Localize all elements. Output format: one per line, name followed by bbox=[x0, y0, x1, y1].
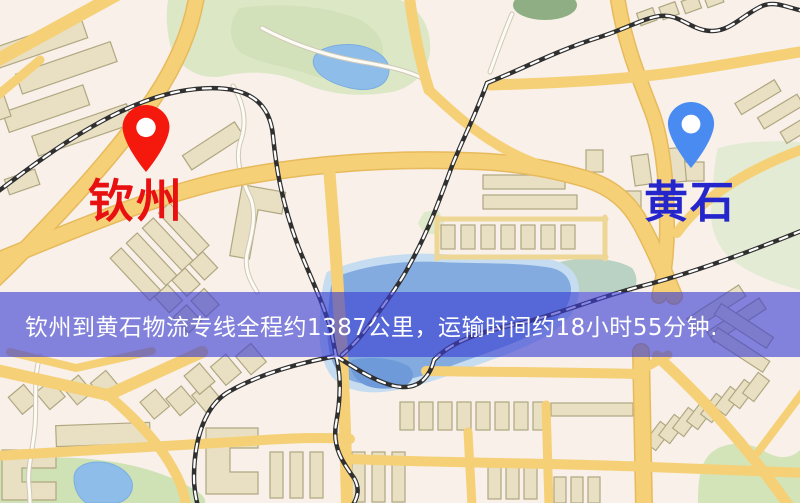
map-image bbox=[0, 0, 800, 503]
route-info-banner: 钦州到黄石物流专线全程约1387公里，运输时间约18小时55分钟. bbox=[0, 292, 800, 357]
route-info-text: 钦州到黄石物流专线全程约1387公里，运输时间约18小时55分钟. bbox=[0, 308, 718, 342]
map-illustration: 钦州 黄石 钦州到黄石物流专线全程约1387公里，运输时间约18小时55分钟. bbox=[0, 0, 800, 503]
origin-city-label: 钦州 bbox=[88, 178, 184, 224]
destination-city-label: 黄石 bbox=[644, 181, 736, 225]
